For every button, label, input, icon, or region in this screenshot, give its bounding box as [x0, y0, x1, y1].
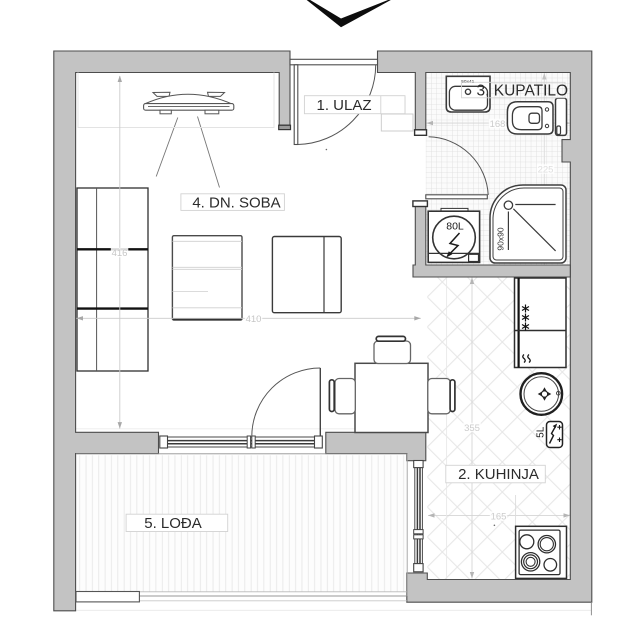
svg-text:225: 225	[538, 165, 554, 176]
svg-text:416: 416	[112, 248, 128, 259]
svg-text:1. ULAZ: 1. ULAZ	[316, 97, 371, 114]
svg-text:5L: 5L	[536, 426, 547, 438]
svg-text:168: 168	[490, 119, 506, 130]
svg-text:90x90: 90x90	[496, 227, 506, 250]
svg-text:410: 410	[246, 314, 262, 325]
svg-text:5. LOĐA: 5. LOĐA	[144, 515, 202, 532]
svg-text:4. DN. SOBA: 4. DN. SOBA	[192, 194, 280, 211]
svg-text:2. KUHINJA: 2. KUHINJA	[458, 466, 539, 483]
svg-text:80L: 80L	[446, 221, 464, 233]
svg-text:3. KUPATILO: 3. KUPATILO	[477, 83, 569, 100]
svg-text:355: 355	[464, 423, 480, 434]
svg-text:165: 165	[491, 512, 507, 523]
